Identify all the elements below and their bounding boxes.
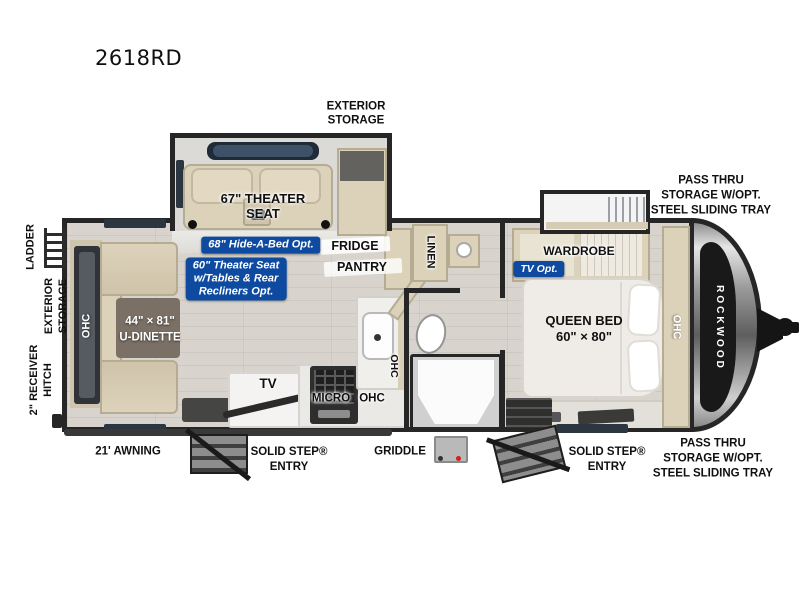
bedroom-bottom-window — [556, 424, 628, 433]
storage-tray-base — [546, 222, 648, 229]
shower-pan-icon — [418, 360, 494, 424]
faucet-icon — [374, 334, 381, 341]
entry-steps-main — [190, 434, 248, 474]
bath-wall-top — [404, 288, 460, 293]
u-dinette-line1: 44" × 81" — [119, 315, 180, 331]
dinette-bench-top — [100, 242, 178, 296]
pass-thru-storage-box — [540, 190, 650, 234]
queen-bed-line1: QUEEN BED — [545, 313, 622, 329]
step-rail-icon — [185, 428, 251, 481]
ladder-label: LADDER — [25, 224, 38, 270]
brand-logo: ROCKWOOD — [713, 285, 725, 371]
model-number: 2618RD — [95, 46, 182, 70]
exterior-storage-top-line2: STORAGE — [328, 114, 385, 127]
receiver-hitch-line1: 2" RECEIVER — [27, 345, 41, 416]
theater-option-line2: w/Tables & Rear — [193, 273, 280, 286]
pass-thru-top-label: PASS THRU STORAGE W/OPT. STEEL SLIDING T… — [651, 174, 771, 219]
theater-option-badge: 60" Theater Seat w/Tables & Rear Recline… — [186, 258, 287, 301]
hide-a-bed-option-badge: 68" Hide-A-Bed Opt. — [201, 237, 320, 254]
solid-step-label-main: SOLID STEP® ENTRY — [251, 445, 328, 475]
ohc-rear-label: OHC — [81, 314, 94, 338]
awning-label: 21' AWNING — [95, 445, 161, 458]
pillow — [627, 339, 662, 393]
exterior-storage-left-line2: STORAGE — [56, 278, 70, 334]
theater-seat-line2: SEAT — [221, 206, 306, 221]
solid-step-line1: SOLID STEP® — [251, 445, 328, 460]
solid-step-line2: ENTRY — [569, 460, 646, 475]
bath-wall-left — [404, 288, 409, 432]
interior-entry-step — [506, 398, 552, 428]
slide-window-glass — [213, 145, 313, 157]
hitch-jack-handle — [791, 322, 799, 333]
step-rail-icon — [486, 437, 570, 472]
solid-step-label-bedroom: SOLID STEP® ENTRY — [569, 445, 646, 475]
ohc-bedroom-label: OHC — [670, 315, 683, 339]
pass-thru-bottom-line1: PASS THRU — [653, 437, 773, 452]
griddle-indicator-icon — [456, 456, 461, 461]
solid-step-line2: ENTRY — [251, 460, 328, 475]
dinette-bench-bottom — [100, 360, 178, 414]
ladder-icon — [44, 228, 66, 268]
wardrobe-label: WARDROBE — [543, 245, 614, 259]
armrest-cupholder-icon — [188, 220, 197, 229]
oven-handle-icon — [318, 410, 350, 418]
receiver-hitch-line2: HITCH — [41, 345, 55, 416]
armrest-cupholder-icon — [321, 220, 330, 229]
theater-seat-line1: 67" THEATER — [221, 191, 306, 206]
exterior-storage-left-line1: EXTERIOR — [42, 278, 56, 334]
queen-bed-label: QUEEN BED 60" × 80" — [545, 313, 622, 345]
exterior-storage-compartment — [340, 151, 384, 181]
theater-option-line3: Recliners Opt. — [193, 286, 280, 299]
theater-seat-label: 67" THEATER SEAT — [221, 191, 306, 221]
pass-thru-top-line3: STEEL SLIDING TRAY — [651, 204, 771, 219]
tv-option-badge: TV Opt. — [513, 261, 564, 277]
bedroom-wall-lower — [500, 350, 505, 432]
sliding-tray-icon — [608, 197, 646, 223]
u-dinette-line2: U-DINETTE — [119, 330, 180, 346]
u-dinette-label: 44" × 81" U-DINETTE — [119, 315, 180, 346]
fridge-label: FRIDGE — [331, 239, 378, 253]
ohc-kitchen-label: OHC — [359, 392, 385, 405]
exterior-storage-left-label: EXTERIOR STORAGE — [42, 278, 70, 334]
linen-label: LINEN — [424, 236, 437, 269]
tv-label: TV — [259, 376, 276, 392]
floorplan-2618rd: 2618RD — [0, 0, 800, 600]
pass-thru-bottom-line3: STEEL SLIDING TRAY — [653, 467, 773, 482]
vanity-sink-icon — [456, 242, 472, 258]
micro-label: MICRO — [312, 392, 350, 405]
receiver-hitch-stub — [52, 414, 62, 428]
bedroom-wall-upper — [500, 222, 505, 298]
theater-option-line1: 60" Theater Seat — [193, 260, 280, 273]
exterior-storage-top-line1: EXTERIOR — [327, 100, 386, 113]
receiver-hitch-label: 2" RECEIVER HITCH — [27, 345, 55, 416]
griddle-knob-icon — [438, 456, 443, 461]
pillow — [627, 283, 662, 337]
ohc-sink-label: OHC — [388, 354, 400, 377]
queen-bed-line2: 60" × 80" — [545, 329, 622, 345]
pass-thru-top-line2: STORAGE W/OPT. — [651, 189, 771, 204]
pass-thru-bottom-line2: STORAGE W/OPT. — [653, 452, 773, 467]
pass-thru-bottom-label: PASS THRU STORAGE W/OPT. STEEL SLIDING T… — [653, 437, 773, 482]
dinette-top-window — [104, 219, 166, 228]
pantry-label: PANTRY — [337, 260, 387, 274]
solid-step-line1: SOLID STEP® — [569, 445, 646, 460]
entry-steps-bedroom — [492, 425, 567, 484]
griddle-label: GRIDDLE — [374, 445, 426, 458]
pass-thru-top-line1: PASS THRU — [651, 174, 771, 189]
